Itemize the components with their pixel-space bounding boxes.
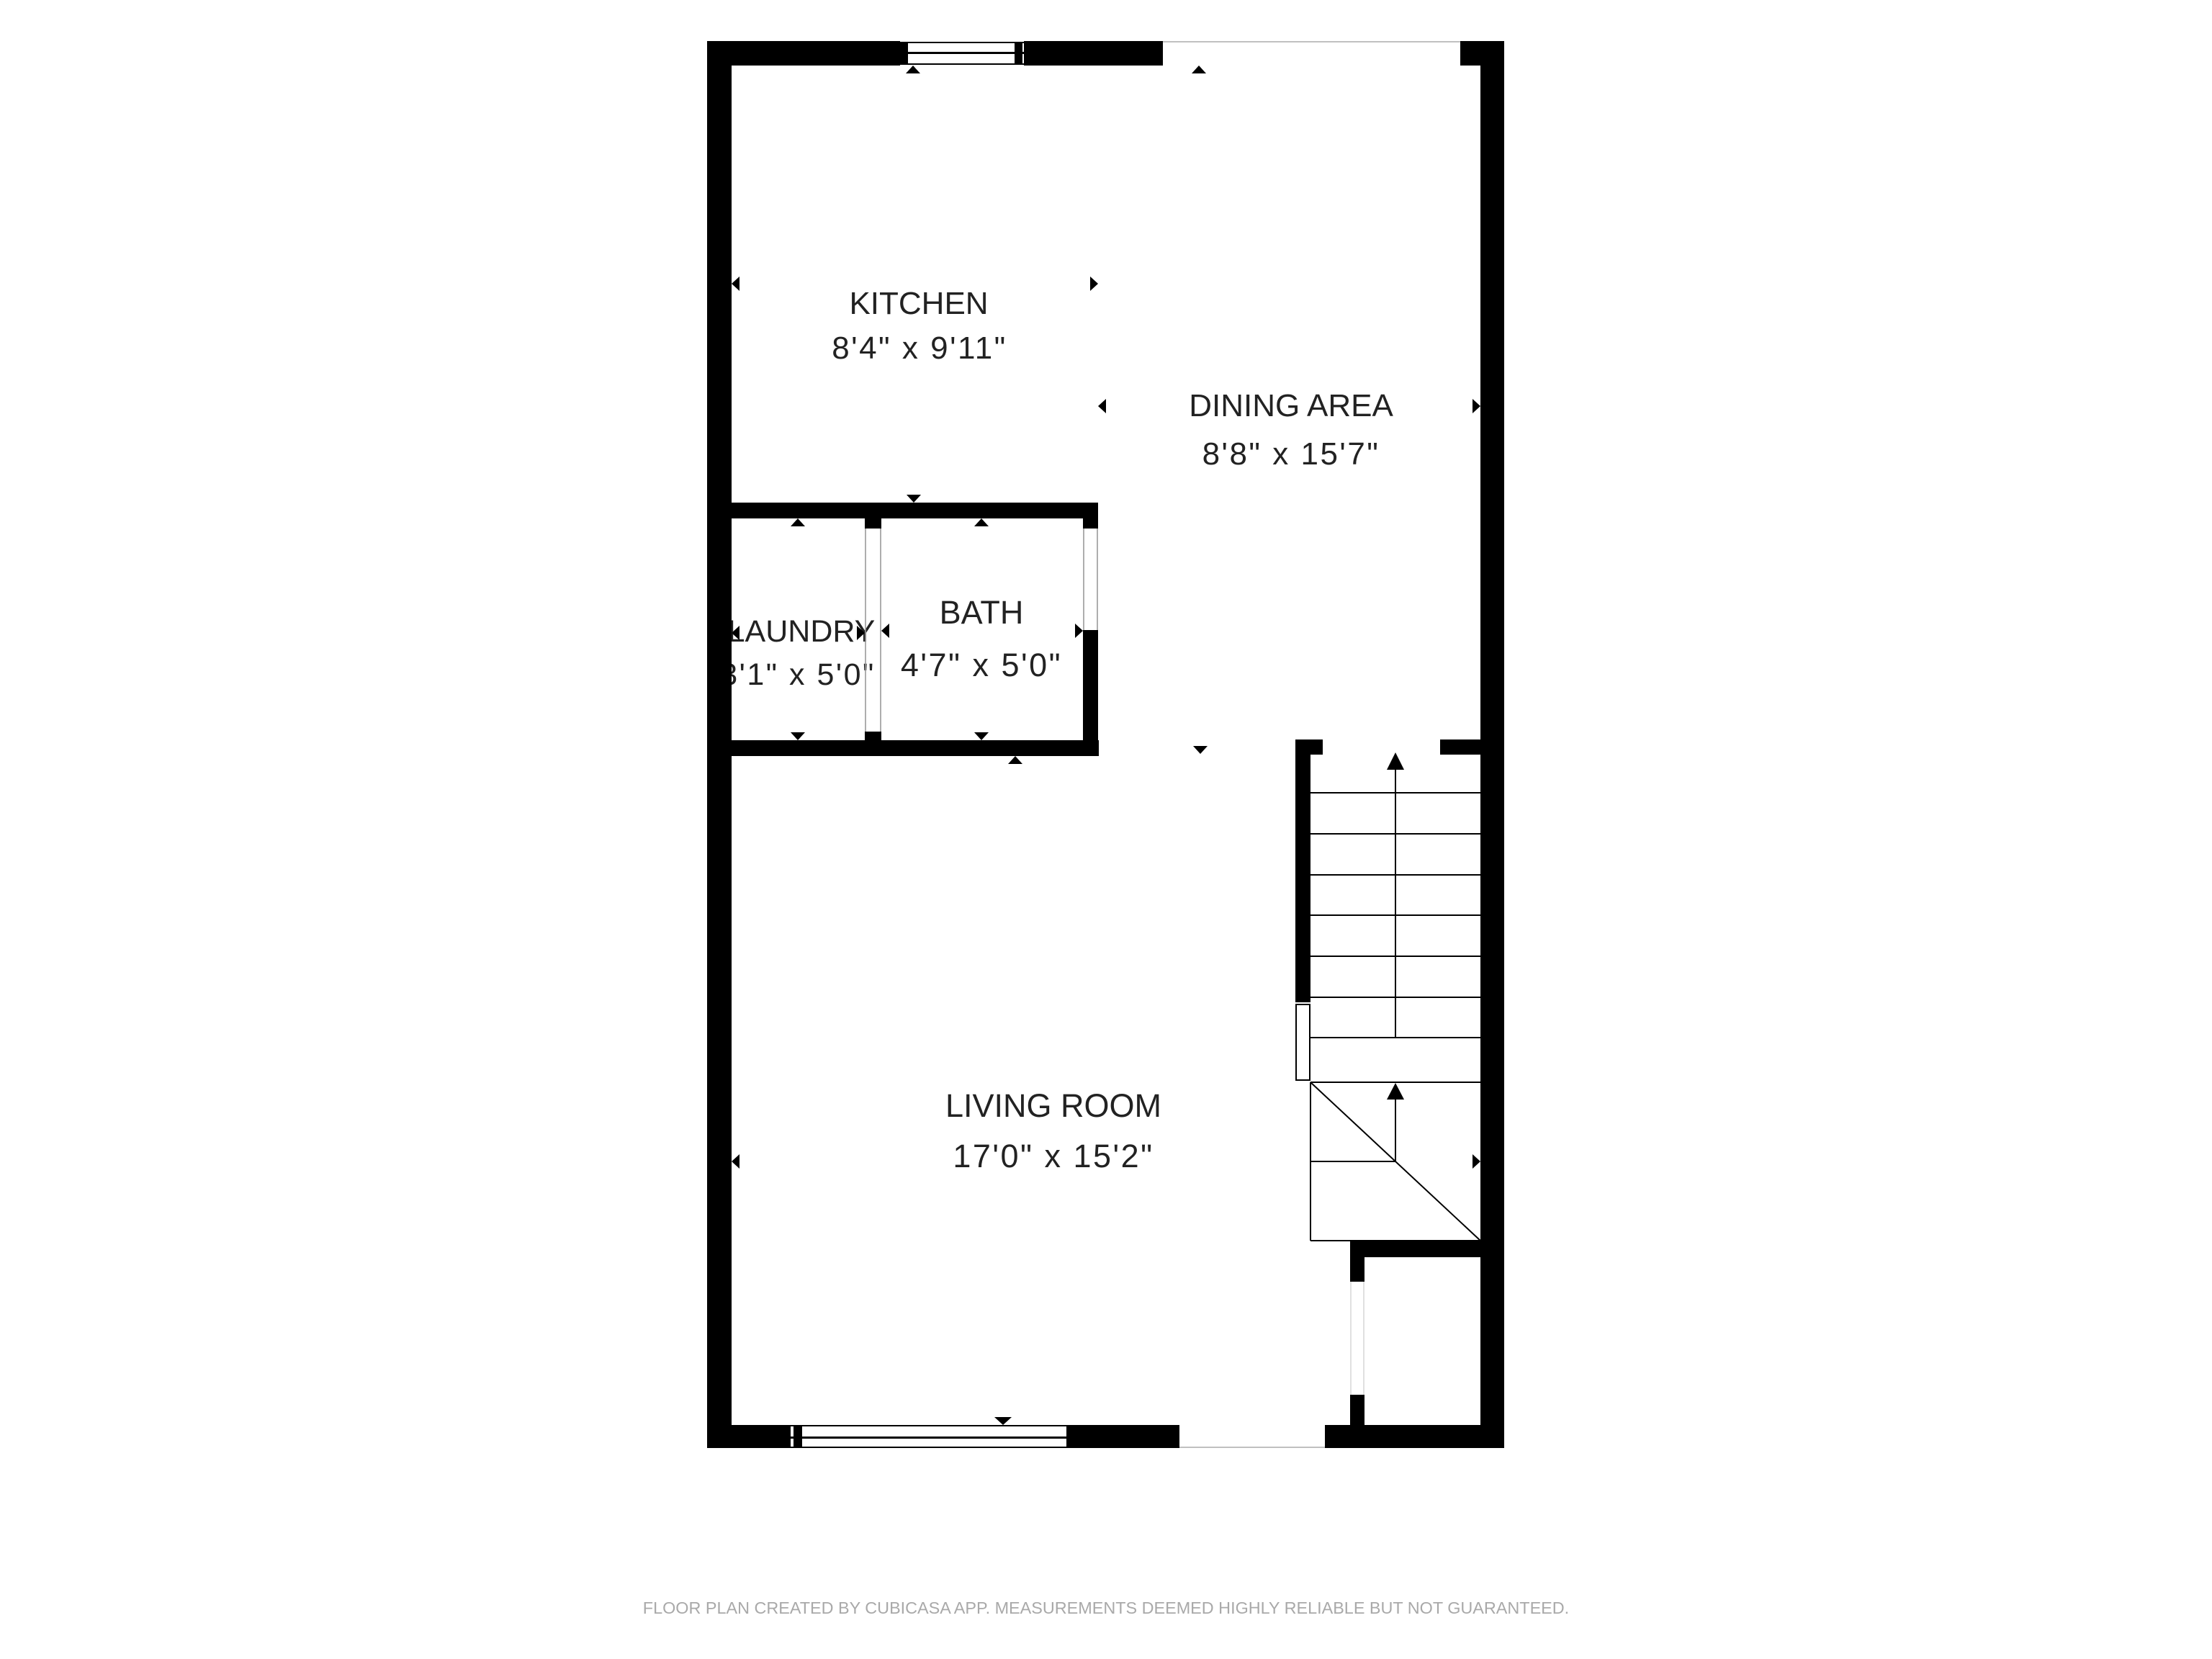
svg-text:4'7" x 5'0": 4'7" x 5'0"	[901, 647, 1062, 683]
svg-text:8'4" x 9'11": 8'4" x 9'11"	[832, 331, 1007, 366]
svg-text:DINING AREA: DINING AREA	[1189, 388, 1393, 423]
svg-text:3'1" x 5'0": 3'1" x 5'0"	[720, 657, 876, 692]
svg-text:LAUNDRY: LAUNDRY	[728, 614, 876, 649]
svg-text:BATH: BATH	[940, 594, 1024, 631]
svg-text:FLOOR PLAN CREATED BY CUBICASA: FLOOR PLAN CREATED BY CUBICASA APP. MEAS…	[643, 1599, 1569, 1617]
svg-text:LIVING ROOM: LIVING ROOM	[945, 1087, 1161, 1124]
svg-text:8'8" x 15'7": 8'8" x 15'7"	[1202, 436, 1380, 472]
svg-text:KITCHEN: KITCHEN	[849, 286, 988, 321]
svg-text:17'0" x 15'2": 17'0" x 15'2"	[953, 1138, 1154, 1174]
